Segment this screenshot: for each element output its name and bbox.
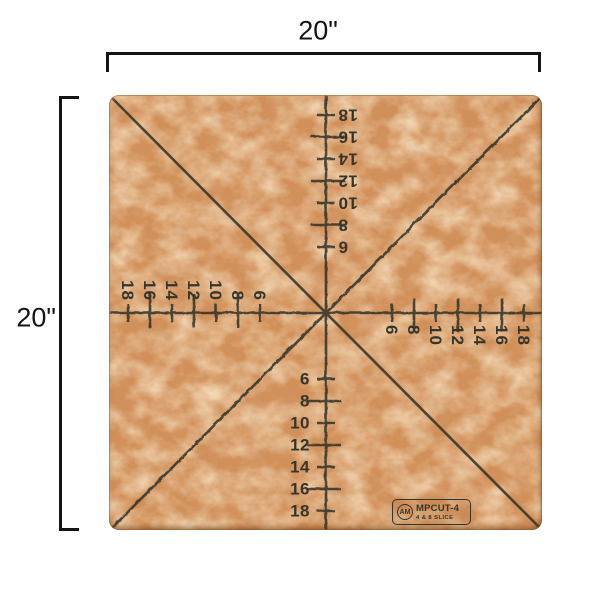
scale-label: 8 [405, 325, 422, 335]
scale-label: 10 [338, 194, 358, 211]
product-dimension-diagram: 20" 20" [0, 0, 600, 600]
scale-label: 14 [338, 150, 358, 167]
scale-label: 16 [290, 480, 310, 497]
brand-logo-icon: AM [397, 504, 413, 520]
scale-label: 6 [251, 290, 268, 300]
scale-label: 12 [338, 172, 358, 189]
scale-label: 12 [449, 325, 466, 346]
scale-label: 6 [338, 238, 348, 255]
scale-label: 10 [290, 414, 310, 431]
scale-label: 18 [338, 106, 358, 123]
scale-label: 18 [515, 325, 532, 346]
scale-label: 16 [338, 128, 358, 145]
cutting-board: 6666888810101010121212121414141416161616… [109, 95, 542, 530]
side-dimension-label: 20" [16, 305, 56, 332]
side-dimension-bracket [59, 96, 79, 531]
top-dimension-label: 20" [298, 18, 338, 45]
scale-label: 6 [383, 325, 400, 335]
scale-label: 16 [141, 280, 158, 301]
scale-label: 8 [338, 216, 348, 233]
top-dimension-bracket [106, 52, 541, 72]
brand-badge: AM MPCUT-4 4 & 8 SLICE [392, 499, 471, 525]
scale-label: 12 [185, 280, 202, 301]
scale-label: 10 [427, 325, 444, 346]
scale-label: 16 [493, 325, 510, 346]
scale-label: 18 [290, 502, 310, 519]
scale-label: 18 [119, 280, 136, 301]
badge-subtitle-text: 4 & 8 SLICE [416, 515, 459, 521]
scale-label: 14 [290, 458, 310, 475]
scale-label: 8 [229, 290, 246, 300]
scale-label: 10 [207, 280, 224, 301]
badge-model-text: MPCUT-4 [416, 503, 459, 514]
scale-label: 14 [471, 325, 488, 346]
scale-label: 12 [290, 436, 310, 453]
scale-labels-layer: 6666888810101010121212121414141416161616… [109, 95, 542, 530]
scale-label: 8 [300, 392, 310, 409]
scale-label: 14 [163, 280, 180, 301]
scale-label: 6 [300, 370, 310, 387]
